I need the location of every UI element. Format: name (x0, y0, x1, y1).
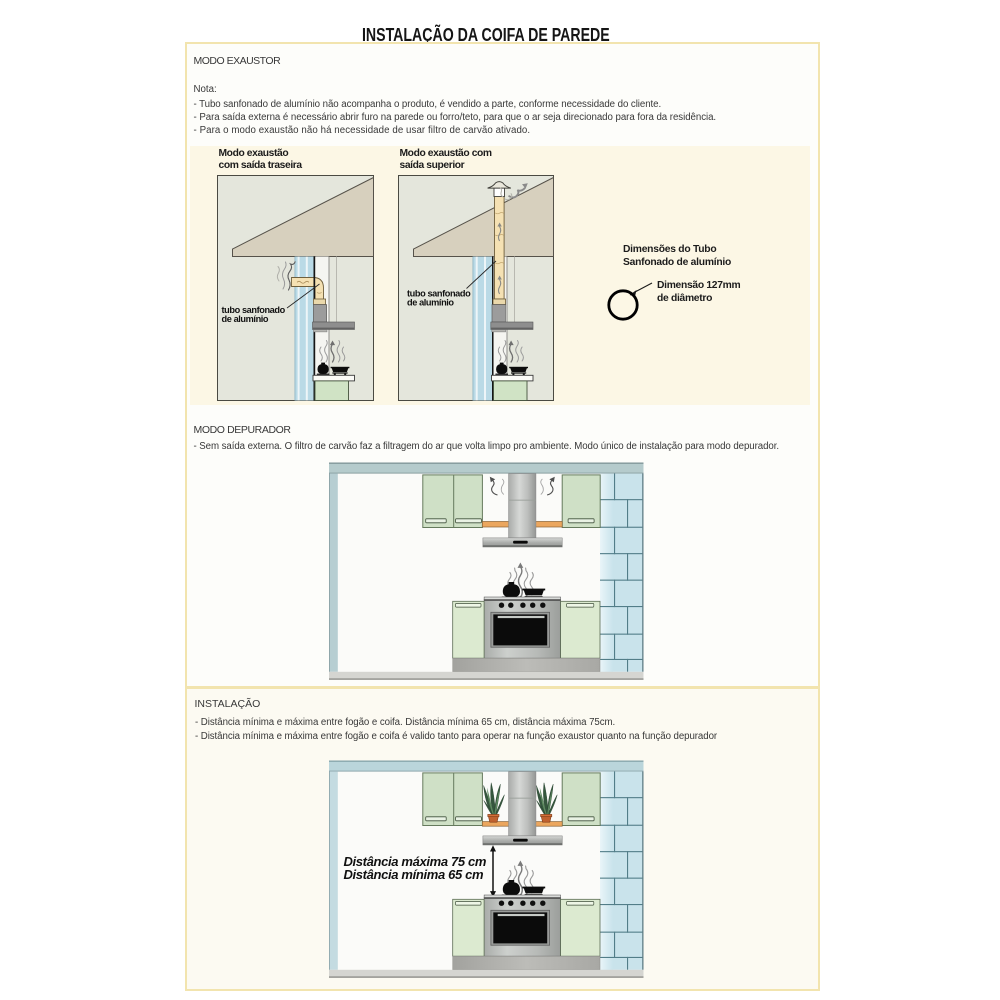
svg-text:de alumínio: de alumínio (407, 298, 454, 308)
svg-text:de alumínio: de alumínio (221, 314, 268, 324)
